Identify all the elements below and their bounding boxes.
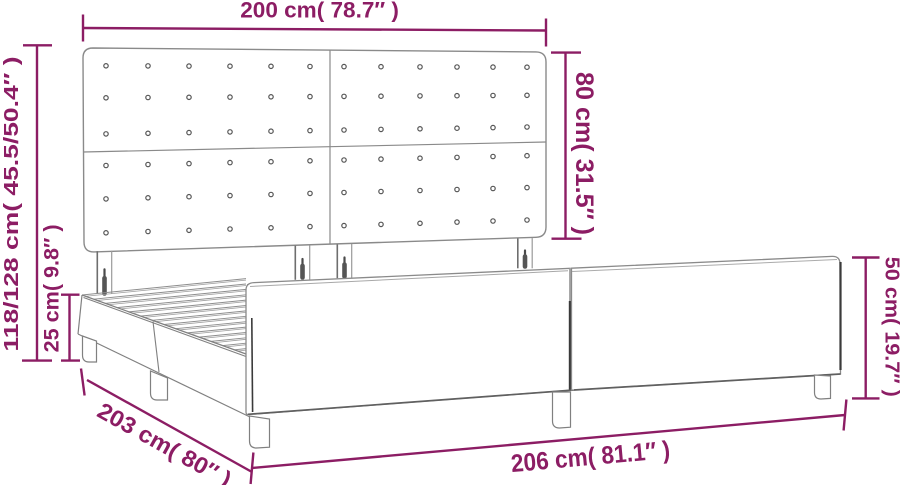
svg-text:25 cm( 9.8″ ): 25 cm( 9.8″ ) xyxy=(41,224,64,352)
svg-text:50 cm( 19.7″ ): 50 cm( 19.7″ ) xyxy=(880,257,900,397)
svg-text:118/128 cm( 45.5/50.4″ ): 118/128 cm( 45.5/50.4″ ) xyxy=(1,57,23,352)
svg-text:200 cm( 78.7″ ): 200 cm( 78.7″ ) xyxy=(240,0,399,23)
svg-text:80 cm( 31.5″ ): 80 cm( 31.5″ ) xyxy=(570,72,598,235)
